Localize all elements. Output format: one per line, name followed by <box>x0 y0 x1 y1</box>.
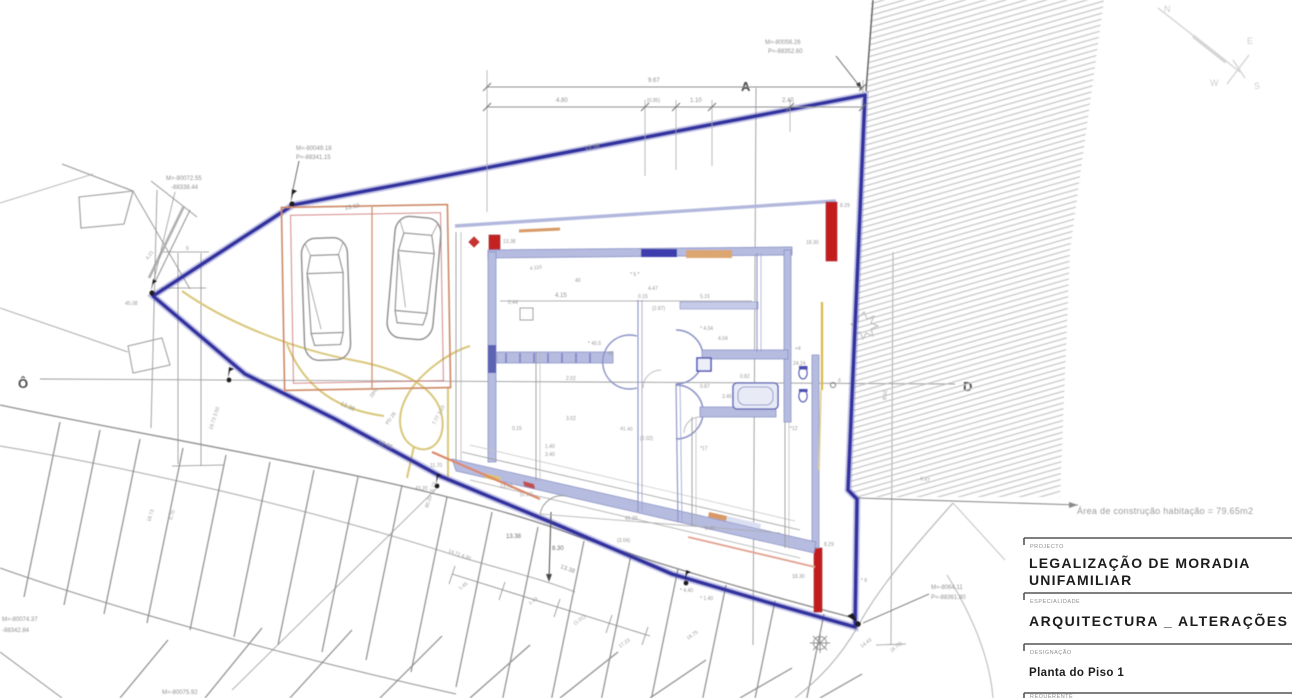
svg-text:1.43: 1.43 <box>528 596 540 607</box>
svg-text:8.29: 8.29 <box>840 203 850 209</box>
svg-text:E: E <box>1247 36 1253 46</box>
svg-text:ESPECIALIDADE: ESPECIALIDADE <box>1030 599 1080 605</box>
svg-text:43.20: 43.20 <box>415 486 428 492</box>
svg-text:DESIGNAÇÃO: DESIGNAÇÃO <box>1030 649 1072 656</box>
svg-text:+4: +4 <box>795 346 801 352</box>
svg-text:LEGALIZAÇÃO DE MORADIA: LEGALIZAÇÃO DE MORADIA <box>1029 554 1251 571</box>
svg-text:18.30: 18.30 <box>792 574 805 580</box>
svg-text:0.44: 0.44 <box>508 300 518 306</box>
svg-text:40: 40 <box>575 278 581 284</box>
svg-text:6: 6 <box>186 246 189 252</box>
svg-text:REQUERENTE: REQUERENTE <box>1030 694 1073 698</box>
svg-text:24.24: 24.24 <box>793 361 806 367</box>
svg-text:8.02: 8.02 <box>882 390 889 400</box>
svg-text:PD 28: PD 28 <box>385 411 398 426</box>
svg-text:13.38: 13.38 <box>503 239 516 245</box>
svg-text:M=-80072.55: M=-80072.55 <box>166 176 202 182</box>
svg-text:0.82: 0.82 <box>740 374 750 380</box>
svg-text:11.70: 11.70 <box>430 463 442 469</box>
svg-text:0.40: 0.40 <box>705 526 715 532</box>
svg-text:P=-88361.80: P=-88361.80 <box>931 595 966 601</box>
svg-text:0.15: 0.15 <box>638 294 648 300</box>
svg-text:*12: *12 <box>790 426 798 432</box>
svg-text:Planta do Piso 1: Planta do Piso 1 <box>1029 667 1124 679</box>
svg-text:PROJECTO: PROJECTO <box>1030 544 1064 550</box>
svg-text:8.30: 8.30 <box>552 546 564 552</box>
svg-text:* 1.40: * 1.40 <box>700 596 713 602</box>
svg-text:0.15: 0.15 <box>512 426 522 432</box>
svg-text:Área de construção habitação: Área de construção habitação = 79.65m2 <box>1077 506 1253 516</box>
svg-text:4.110: 4.110 <box>529 264 542 272</box>
svg-text:3.02: 3.02 <box>566 416 576 422</box>
svg-text:45.08: 45.08 <box>125 301 138 307</box>
svg-text:4.15: 4.15 <box>555 293 567 299</box>
svg-text:9.67: 9.67 <box>648 78 660 84</box>
svg-text:41.20: 41.20 <box>625 516 638 522</box>
svg-text:(2.02): (2.02) <box>640 436 653 442</box>
svg-text:7.77 3.10: 7.77 3.10 <box>431 405 446 426</box>
svg-text:8.29: 8.29 <box>824 542 834 548</box>
svg-text:(0.85): (0.85) <box>647 98 660 104</box>
svg-text:40: 40 <box>608 351 614 357</box>
svg-text:18.30: 18.30 <box>806 240 819 246</box>
svg-text:14.43: 14.43 <box>860 637 874 650</box>
svg-text:18.73: 18.73 <box>146 509 156 523</box>
svg-text:* 6: * 6 <box>861 578 867 584</box>
svg-text:19.73 3.50: 19.73 3.50 <box>208 406 221 431</box>
svg-text:M=-80075.92: M=-80075.92 <box>162 690 198 696</box>
svg-text:* 40.5: * 40.5 <box>588 341 601 347</box>
svg-text:M=-80074.37: M=-80074.37 <box>2 617 38 623</box>
svg-text:-88338.44: -88338.44 <box>171 185 199 191</box>
svg-text:1.10: 1.10 <box>690 98 702 104</box>
svg-text:ARQUITECTURA _ ALTERAÇÕES: ARQUITECTURA _ ALTERAÇÕES <box>1029 612 1288 629</box>
svg-text:14.71 4.30: 14.71 4.30 <box>447 548 471 562</box>
svg-text:(2.87): (2.87) <box>652 306 665 312</box>
svg-text:1.40: 1.40 <box>545 444 555 450</box>
svg-text:17.23: 17.23 <box>618 637 632 649</box>
svg-text:UNIFAMILIAR: UNIFAMILIAR <box>1029 572 1132 588</box>
svg-text:(0.18): (0.18) <box>520 492 533 498</box>
svg-text:A: A <box>741 79 751 94</box>
svg-text:(4.70): (4.70) <box>890 641 904 654</box>
svg-text:0.87: 0.87 <box>700 384 710 390</box>
svg-text:13.70: 13.70 <box>500 484 513 490</box>
svg-text:M=-80056.26: M=-80056.26 <box>765 40 801 46</box>
svg-text:(3.04): (3.04) <box>617 538 630 544</box>
svg-text:* 4.04: * 4.04 <box>700 326 713 332</box>
svg-text:3.40: 3.40 <box>545 452 555 458</box>
svg-text:-88342.84: -88342.84 <box>2 628 30 634</box>
svg-text:16.75: 16.75 <box>686 629 700 641</box>
svg-text:4.80: 4.80 <box>556 98 568 104</box>
svg-text:2.02: 2.02 <box>566 376 576 382</box>
svg-text:13.38: 13.38 <box>559 564 576 575</box>
svg-text:4.04: 4.04 <box>718 336 728 342</box>
svg-text:*17: *17 <box>700 446 708 452</box>
svg-text:* 5 *: * 5 * <box>630 272 640 278</box>
svg-text:P=-88352.60: P=-88352.60 <box>768 49 803 55</box>
svg-text:13.38: 13.38 <box>339 401 356 413</box>
svg-text:4.47: 4.47 <box>648 286 658 292</box>
svg-text:41.40: 41.40 <box>620 426 633 433</box>
svg-text:M=-8064.11: M=-8064.11 <box>931 585 963 591</box>
svg-text:S: S <box>1254 81 1260 91</box>
svg-text:3.46: 3.46 <box>722 394 732 400</box>
svg-text:2.40: 2.40 <box>782 98 794 104</box>
svg-text:N: N <box>1164 4 1171 14</box>
svg-text:* 4.40: * 4.40 <box>680 588 693 594</box>
svg-text:1.45: 1.45 <box>458 581 470 592</box>
svg-text:Ô: Ô <box>18 376 28 391</box>
svg-text:13.38: 13.38 <box>506 534 522 540</box>
svg-text:ô: ô <box>838 378 841 384</box>
svg-text:5.15: 5.15 <box>700 294 710 300</box>
svg-text:M=-80049.18: M=-80049.18 <box>296 146 332 152</box>
svg-text:P=-88341.15: P=-88341.15 <box>296 155 331 161</box>
svg-text:W: W <box>1210 78 1219 88</box>
svg-text:4.21: 4.21 <box>145 250 156 262</box>
svg-text:13.19: 13.19 <box>344 203 361 212</box>
